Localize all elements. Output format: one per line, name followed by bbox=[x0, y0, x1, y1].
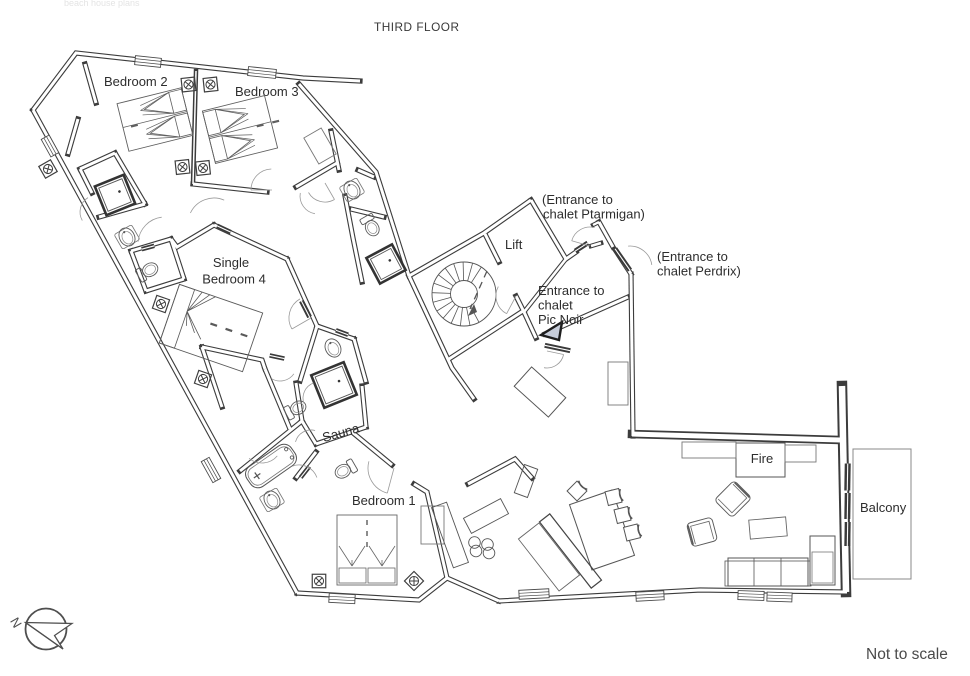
svg-text:Bedroom 2: Bedroom 2 bbox=[104, 74, 168, 89]
svg-text:chalet: chalet bbox=[538, 298, 573, 313]
svg-text:Balcony: Balcony bbox=[860, 500, 907, 515]
svg-text:Bedroom 3: Bedroom 3 bbox=[235, 84, 299, 99]
svg-text:(Entrance to: (Entrance to bbox=[542, 192, 613, 207]
svg-text:chalet Ptarmigan): chalet Ptarmigan) bbox=[543, 207, 645, 222]
svg-text:Bedroom 4: Bedroom 4 bbox=[202, 272, 266, 287]
svg-text:Single: Single bbox=[213, 255, 249, 270]
svg-text:Fire: Fire bbox=[751, 451, 773, 466]
svg-text:Not to scale: Not to scale bbox=[866, 646, 948, 663]
svg-text:(Entrance to: (Entrance to bbox=[657, 249, 728, 264]
svg-text:Bedroom 1: Bedroom 1 bbox=[352, 493, 416, 508]
svg-text:chalet Perdrix): chalet Perdrix) bbox=[657, 264, 741, 279]
svg-text:Entrance to: Entrance to bbox=[538, 283, 605, 298]
svg-text:Lift: Lift bbox=[505, 237, 523, 252]
svg-text:beach house plans: beach house plans bbox=[64, 0, 140, 8]
svg-text:THIRD FLOOR: THIRD FLOOR bbox=[374, 20, 459, 34]
svg-text:Pic Noir: Pic Noir bbox=[538, 312, 584, 327]
